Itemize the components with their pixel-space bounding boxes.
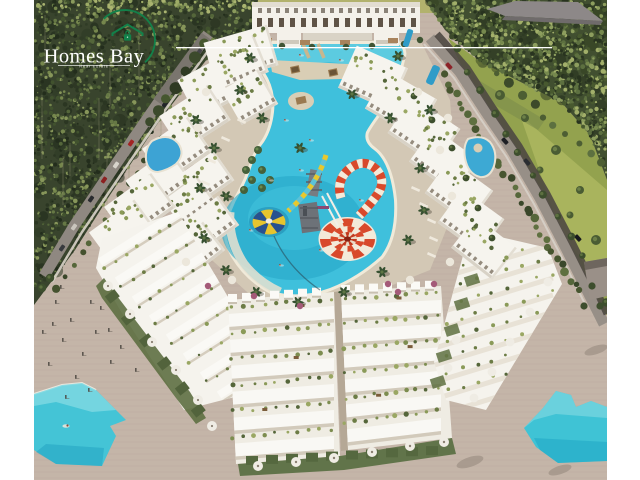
svg-text:Real Estate: Real Estate	[79, 63, 108, 68]
